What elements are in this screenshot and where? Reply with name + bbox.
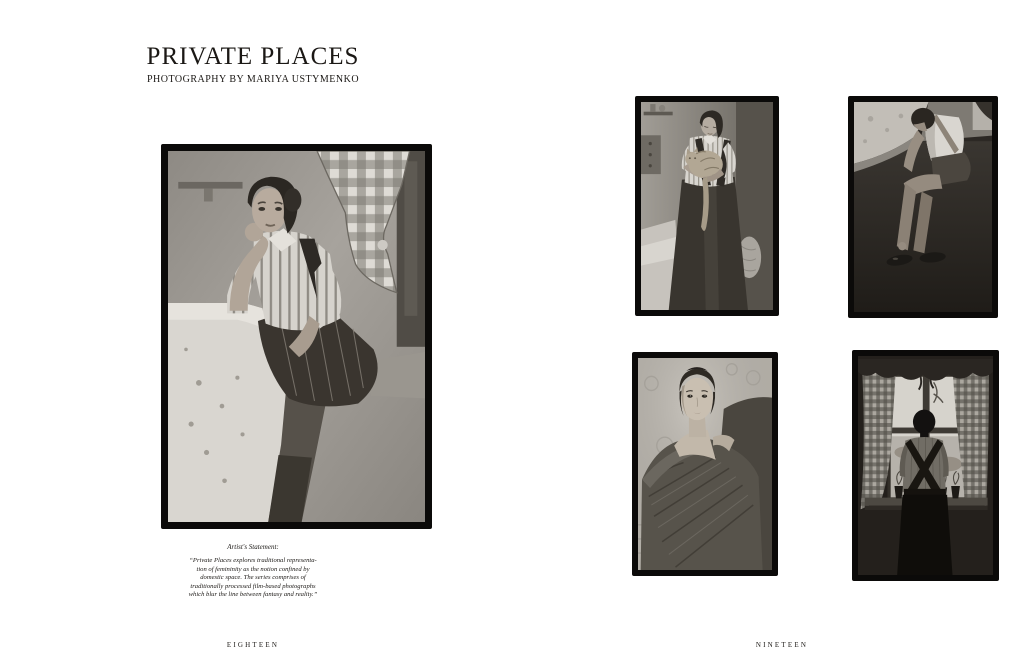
woman-holding-cat-illustration (641, 102, 773, 310)
woman-at-table-illustration (168, 151, 425, 522)
woman-fastening-shoe-illustration (854, 102, 992, 312)
photo-woman-holding-cat (635, 96, 779, 316)
portrait-in-shawl-illustration (638, 358, 772, 570)
folio-eighteen: EIGHTEEN (128, 641, 378, 649)
photo-woman-at-table (161, 144, 432, 529)
woman-at-window-illustration (858, 356, 993, 575)
article-header: PRIVATE PLACES PHOTOGRAPHY BY MARIYA UST… (128, 44, 378, 85)
photo-woman-at-window (852, 350, 999, 581)
statement-heading: Artist's Statement: (168, 543, 338, 551)
photo-portrait-in-shawl (632, 352, 778, 576)
photo-woman-fastening-shoe (848, 96, 998, 318)
statement-body: “Private Places explores traditional rep… (168, 557, 338, 600)
article-byline: PHOTOGRAPHY BY MARIYA USTYMENKO (128, 74, 378, 85)
article-title: PRIVATE PLACES (128, 44, 378, 70)
magazine-spread: PRIVATE PLACES PHOTOGRAPHY BY MARIYA UST… (0, 0, 1024, 667)
folio-nineteen: NINETEEN (657, 641, 907, 649)
artist-statement: Artist's Statement: “Private Places expl… (168, 543, 338, 600)
